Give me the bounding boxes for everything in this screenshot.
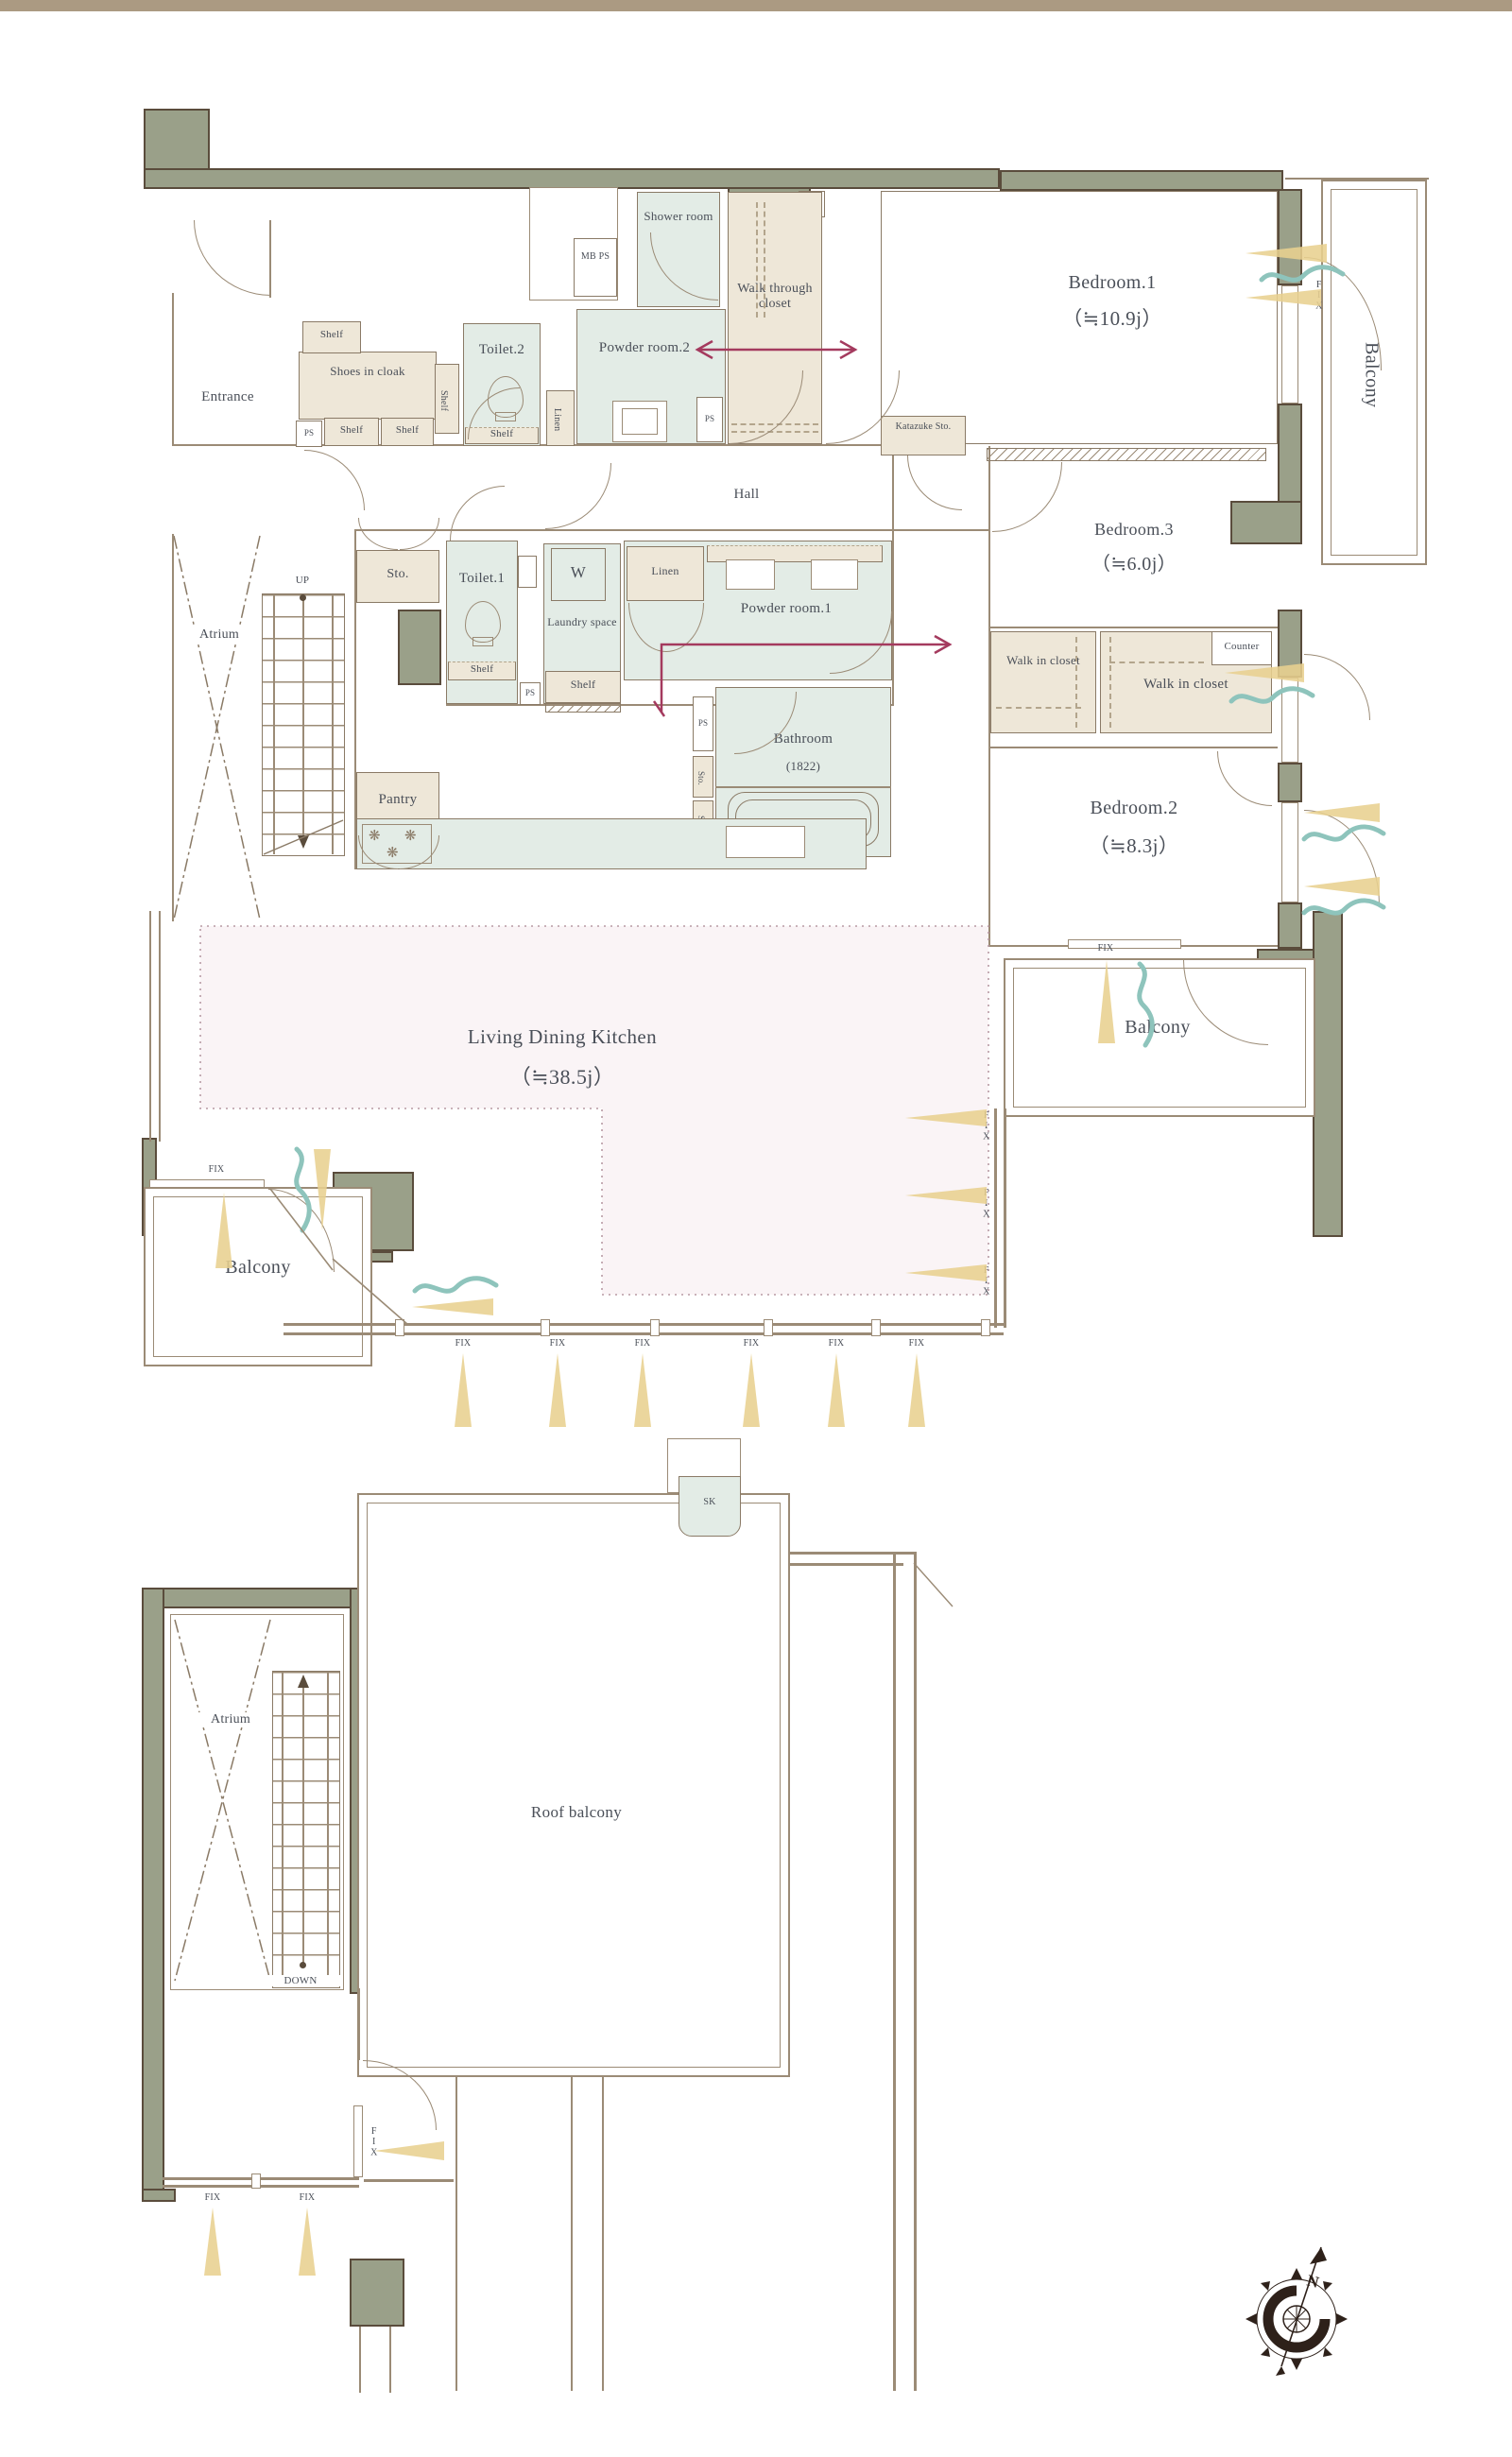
fix-label: FIX: [369, 2121, 379, 2164]
wall-segment: [350, 2259, 404, 2327]
stair-rail: [282, 1673, 283, 1986]
atrium-label: Atrium: [197, 1712, 265, 1727]
parapet-line: [790, 1552, 916, 1555]
north-label: N: [1305, 2271, 1321, 2292]
window-mullion: [251, 2173, 261, 2189]
stair-direction-dot: [300, 1962, 306, 1968]
stair-rail: [327, 1673, 329, 1986]
parapet-line: [571, 2077, 573, 2391]
window-line: [163, 2185, 359, 2188]
stair-direction-line: [302, 1684, 304, 1964]
parapet-line: [389, 2327, 391, 2393]
fix-label: FIX: [190, 2192, 235, 2203]
wall-line: [357, 1988, 360, 2060]
parapet-line: [893, 1552, 896, 2391]
parapet-line: [790, 1563, 903, 1566]
room-label-roof-balcony: Roof balcony: [491, 1803, 661, 1821]
window-line: [163, 2177, 359, 2180]
circulation-arrows: [0, 0, 1512, 2457]
window-line: [364, 2179, 454, 2182]
down-label: DOWN: [261, 1975, 340, 1986]
atrium-cross-lines: [173, 1618, 272, 1983]
wall-segment: [142, 1588, 164, 2202]
parapet-line: [914, 1552, 917, 2391]
sk-label: SK: [682, 1497, 737, 1507]
floor-plan: Entrance Shoes in cloak Shelf Shelf PS S…: [0, 0, 1512, 2457]
window: [353, 2105, 363, 2177]
wall-segment: [142, 1588, 378, 1608]
parapet-line: [602, 2077, 604, 2391]
roof-balcony-inner-line: [367, 1503, 781, 2068]
fix-label: FIX: [284, 2192, 330, 2203]
parapet-line: [455, 2077, 457, 2391]
wall-segment: [142, 2189, 176, 2202]
parapet-line: [359, 2327, 361, 2393]
compass-rose: N: [1228, 2232, 1389, 2431]
